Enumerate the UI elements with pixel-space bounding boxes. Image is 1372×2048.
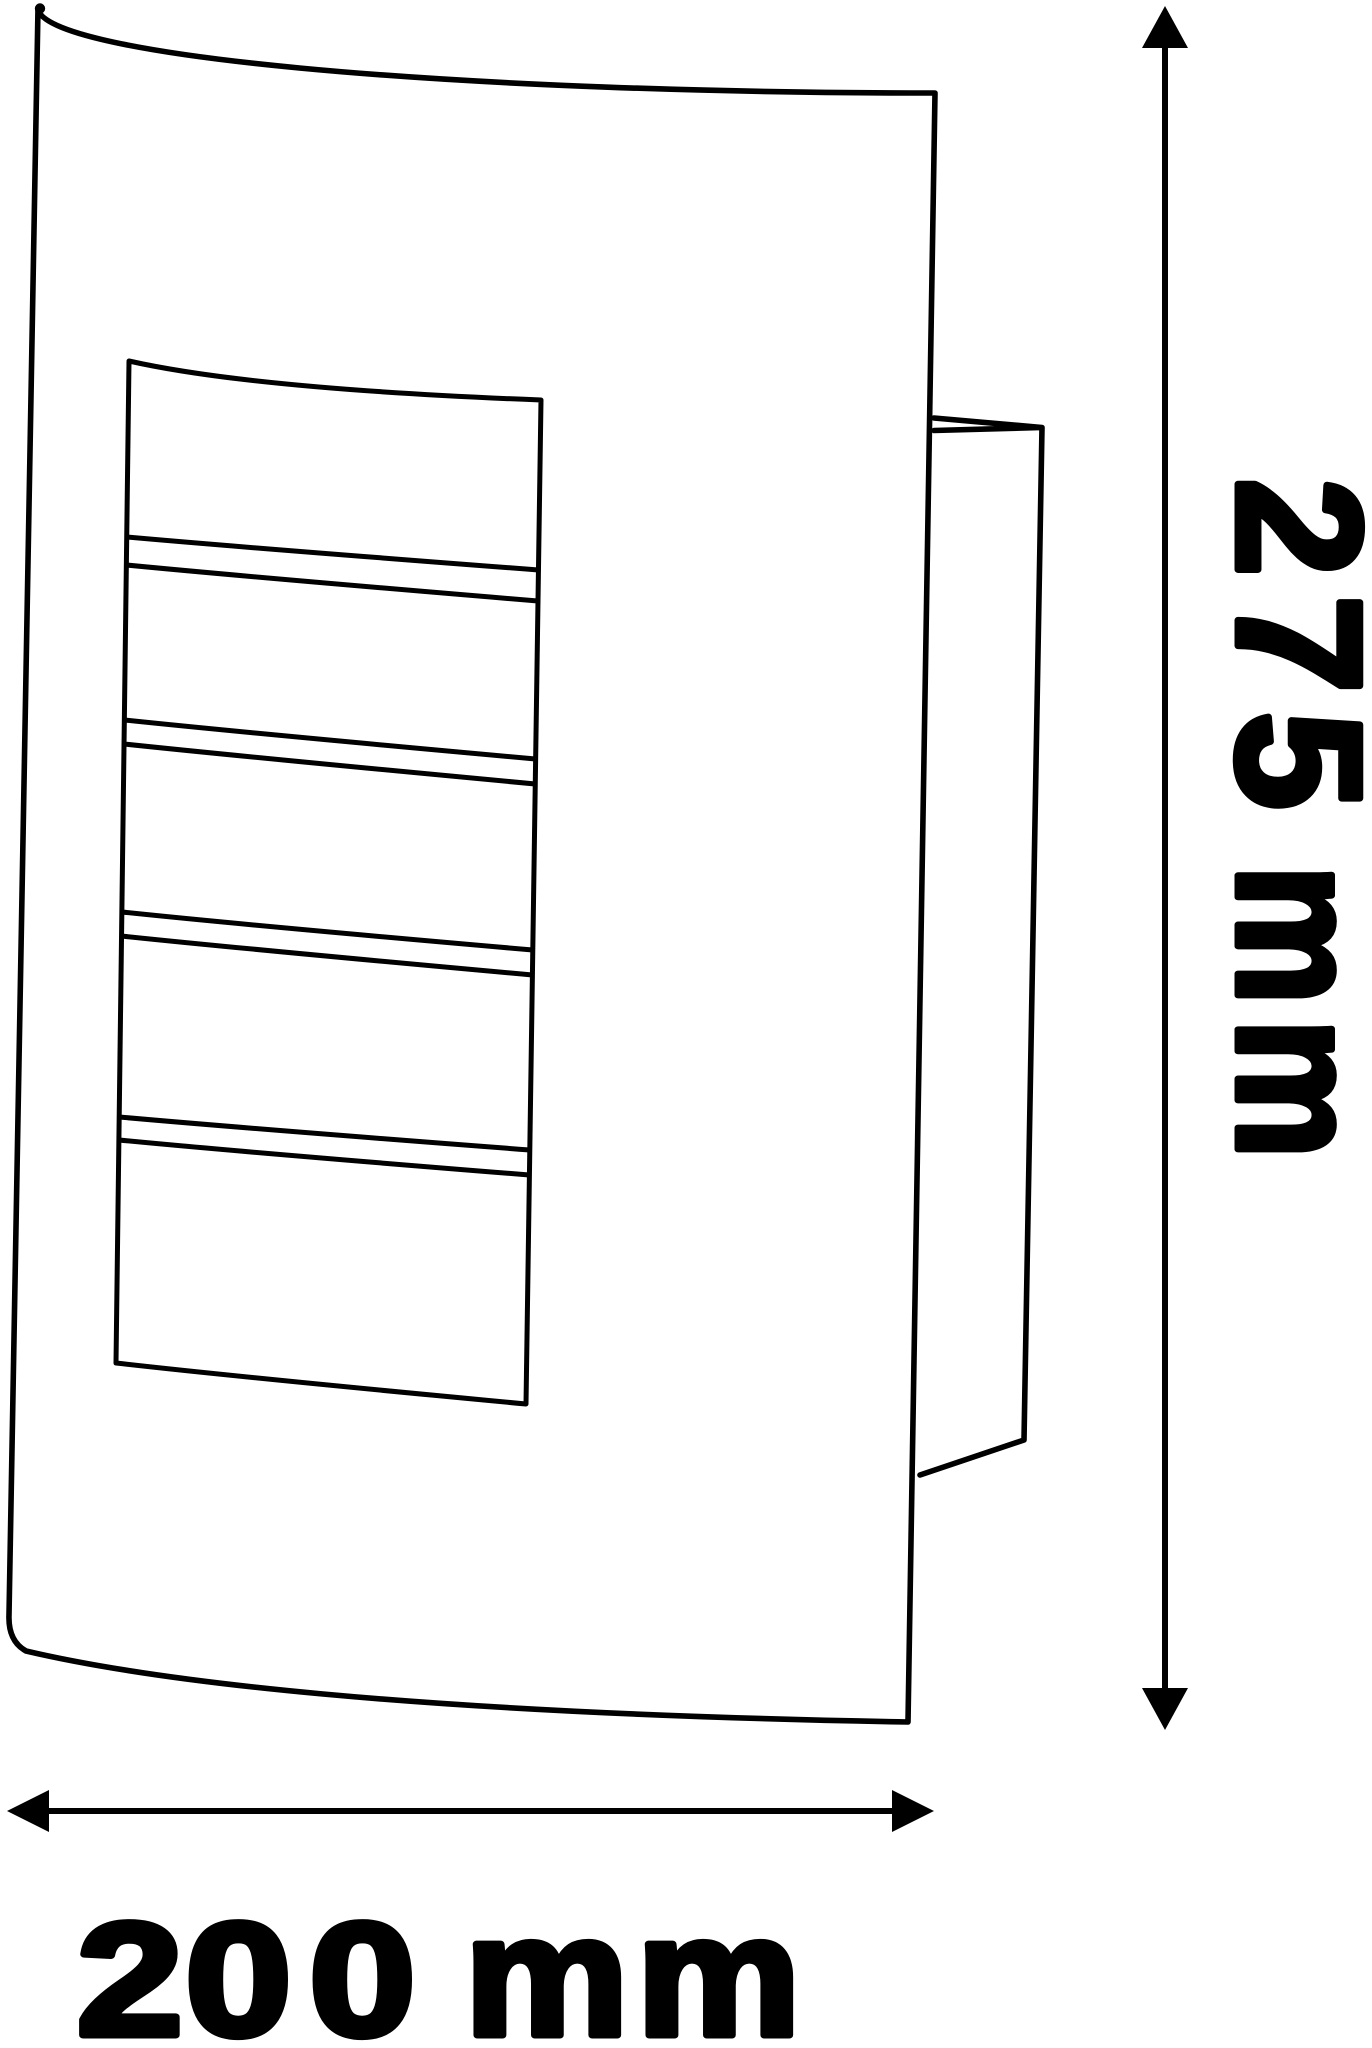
svg-text:mm: mm (1200, 864, 1372, 1159)
svg-text:275: 275 (1200, 478, 1372, 810)
svg-text:mm: mm (464, 1879, 801, 2048)
svg-text:200: 200 (77, 1890, 416, 2048)
